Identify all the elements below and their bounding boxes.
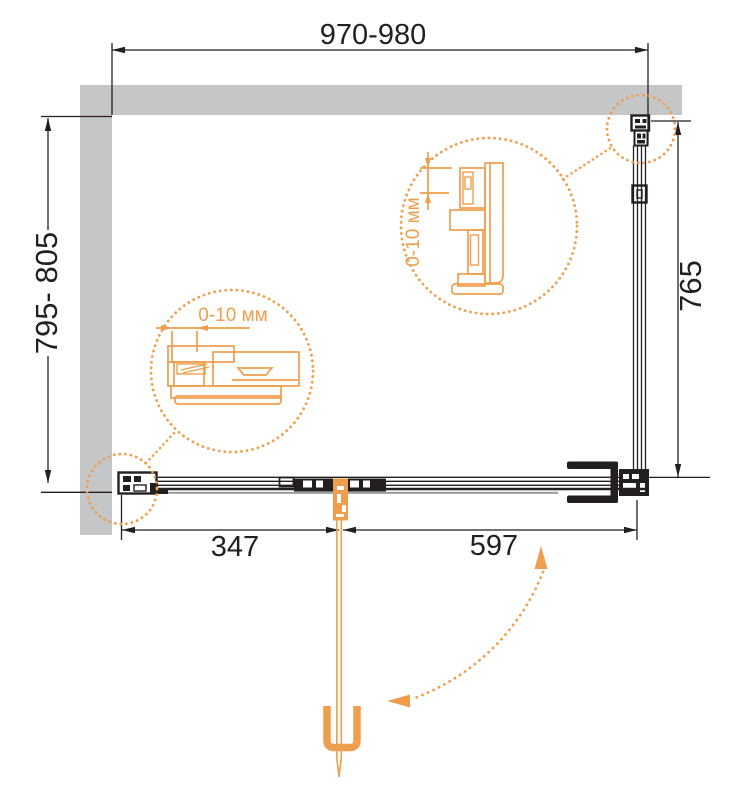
dimension-label-right: 765 xyxy=(673,260,708,312)
door-pivot-plate xyxy=(333,479,348,521)
door-hinge-strip xyxy=(280,478,387,492)
dimension-label-347: 347 xyxy=(211,531,259,563)
shower-enclosure-plan-diagram: 970-980 795- 805 765 347 597 xyxy=(0,0,732,800)
technical-drawing-canvas: 970-980 795- 805 765 347 597 xyxy=(0,0,732,800)
dimension-label-top: 970-980 xyxy=(320,19,426,51)
dimension-label-left: 795- 805 xyxy=(29,232,64,354)
callout-label-left: 0-10 мм xyxy=(198,305,267,326)
dimension-label-597: 597 xyxy=(470,530,518,562)
wall-top xyxy=(80,85,682,115)
corner-connector xyxy=(619,469,649,496)
callout-label-right: 0-10 мм xyxy=(403,197,424,266)
wall-left xyxy=(80,115,112,535)
